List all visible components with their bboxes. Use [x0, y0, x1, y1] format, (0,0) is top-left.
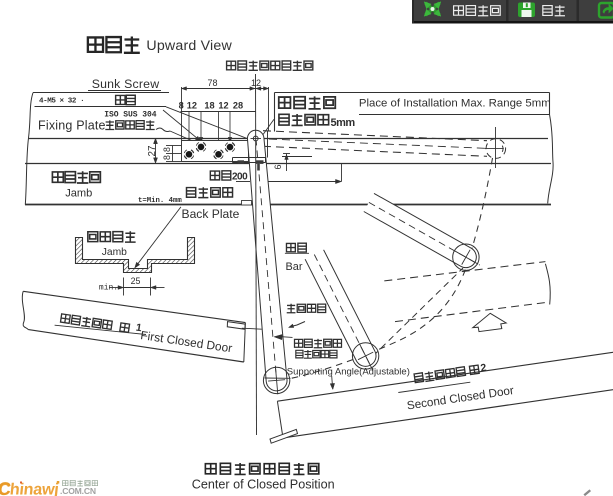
svg-text:27: 27	[147, 146, 158, 157]
svg-text:min.: min.	[99, 284, 118, 293]
svg-text:Supporting Angle(Adjustable): Supporting Angle(Adjustable)	[287, 367, 410, 378]
svg-text:8: 8	[179, 101, 184, 111]
svg-text:200: 200	[232, 171, 248, 182]
svg-text:5mm: 5mm	[331, 117, 356, 129]
svg-text:.COM.CN: .COM.CN	[60, 486, 96, 496]
svg-text:Back Plate: Back Plate	[182, 207, 240, 221]
svg-text:ISO SUS 304: ISO SUS 304	[104, 111, 157, 120]
svg-text:Center of Closed Position: Center of Closed Position	[192, 478, 335, 492]
svg-text:Bar: Bar	[286, 261, 303, 273]
svg-text:Sunk Screw: Sunk Screw	[92, 77, 160, 91]
svg-text:25: 25	[131, 276, 141, 286]
svg-text:78: 78	[207, 78, 217, 88]
svg-text:Jamb: Jamb	[102, 247, 127, 258]
svg-text:28: 28	[233, 101, 243, 111]
svg-text:8: 8	[162, 155, 172, 160]
svg-text:Upward View: Upward View	[146, 38, 232, 54]
svg-text:18: 18	[204, 101, 214, 111]
svg-text:6: 6	[273, 164, 283, 169]
svg-text:4-M5 × 32 ·: 4-M5 × 32 ·	[39, 98, 84, 106]
svg-text:Place of Installation Max. Ran: Place of Installation Max. Range 5mm	[359, 98, 551, 110]
svg-text:12: 12	[218, 101, 228, 111]
svg-text:t=Min. 4mm: t=Min. 4mm	[138, 197, 182, 205]
svg-text:12: 12	[187, 101, 197, 111]
svg-text:C: C	[0, 478, 12, 496]
svg-text:Jamb: Jamb	[65, 188, 92, 200]
svg-text:8: 8	[162, 147, 172, 152]
svg-text:Fixing Plate: Fixing Plate	[38, 119, 106, 133]
